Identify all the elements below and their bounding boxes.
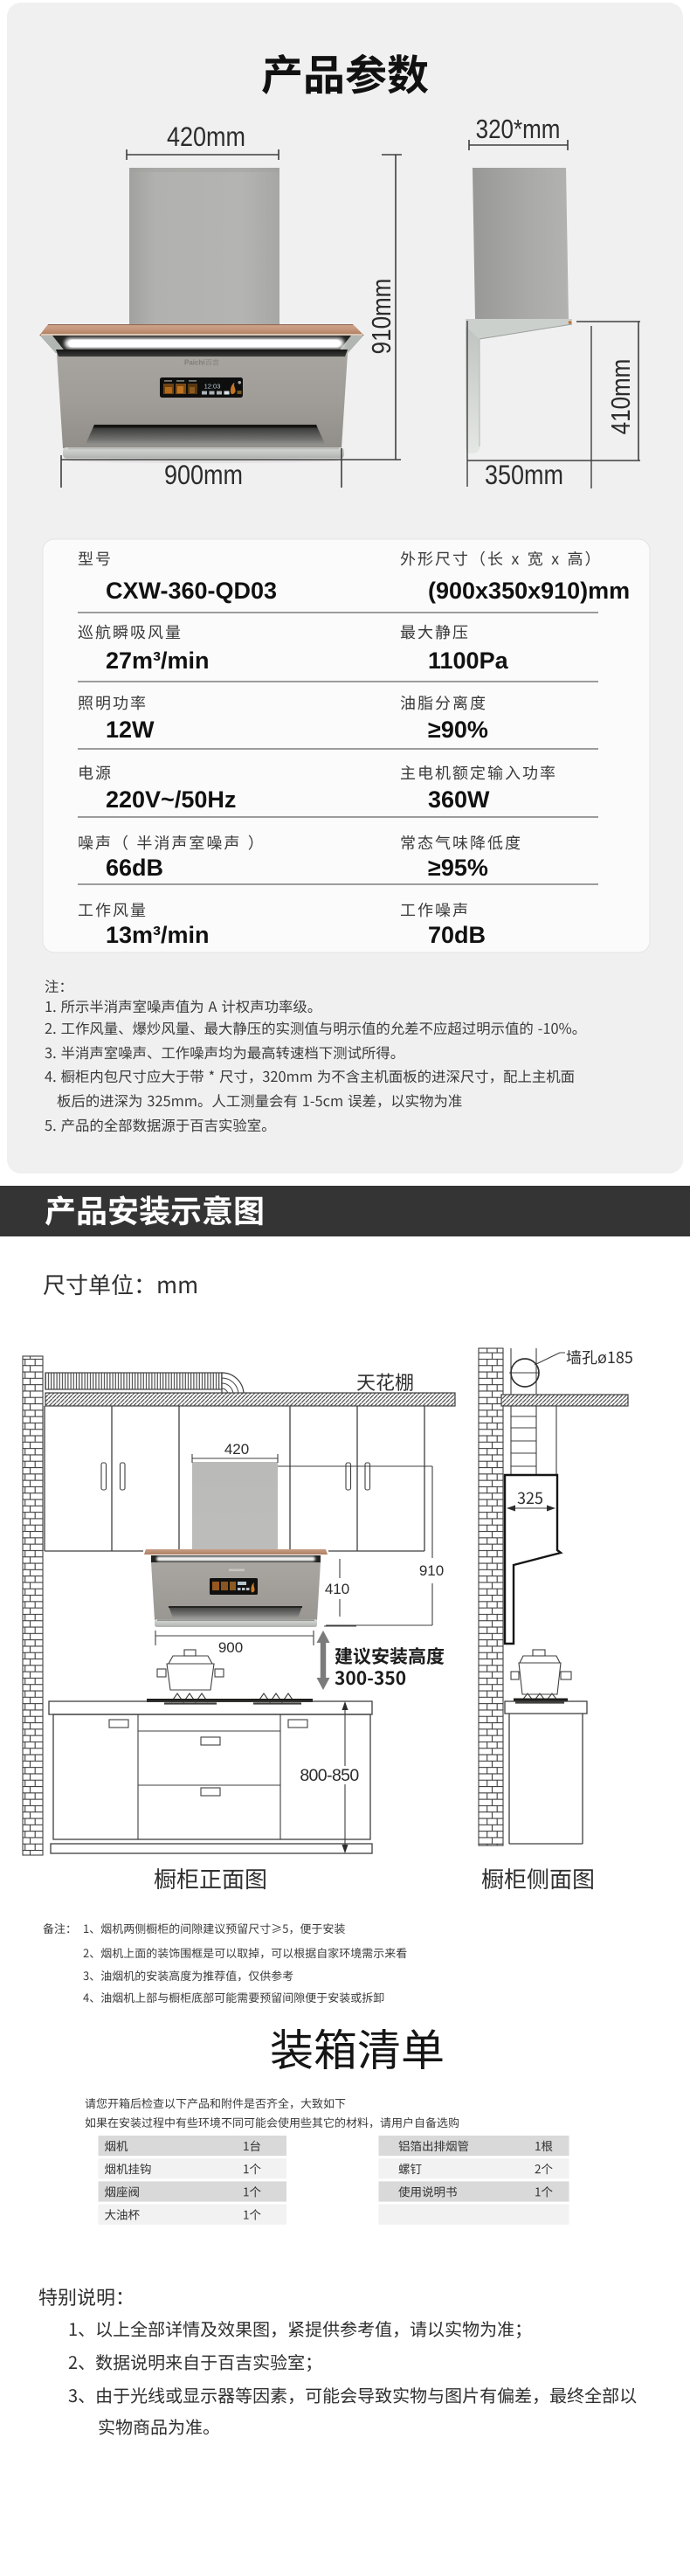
svg-text:420mm: 420mm [167,121,245,153]
svg-text:1100Pa: 1100Pa [428,647,509,674]
svg-text:410: 410 [325,1581,349,1597]
svg-text:900: 900 [218,1639,243,1656]
svg-text:66dB: 66dB [106,855,163,881]
svg-text:420: 420 [224,1441,249,1458]
svg-text:(900x350x910)mm: (900x350x910)mm [428,578,630,604]
svg-text:320*mm: 320*mm [476,114,561,145]
svg-text:910mm: 910mm [367,279,397,355]
svg-text:12:03: 12:03 [204,383,221,391]
svg-text:900mm: 900mm [164,460,243,491]
svg-text:13m³/min: 13m³/min [106,922,210,948]
svg-text:360W: 360W [428,786,490,813]
svg-text:12W: 12W [106,717,155,743]
svg-text:800-850: 800-850 [300,1766,359,1785]
svg-text:70dB: 70dB [428,922,486,948]
svg-text:350mm: 350mm [485,460,563,491]
svg-text:≥95%: ≥95% [428,855,488,881]
svg-text:Paichi: Paichi [184,359,205,367]
svg-text:CXW-360-QD03: CXW-360-QD03 [106,578,277,604]
svg-text:220V~/50Hz: 220V~/50Hz [106,786,236,813]
svg-text:410mm: 410mm [606,359,637,435]
svg-text:≥90%: ≥90% [428,717,488,743]
svg-text:910: 910 [419,1562,444,1579]
svg-text:27m³/min: 27m³/min [106,647,210,674]
